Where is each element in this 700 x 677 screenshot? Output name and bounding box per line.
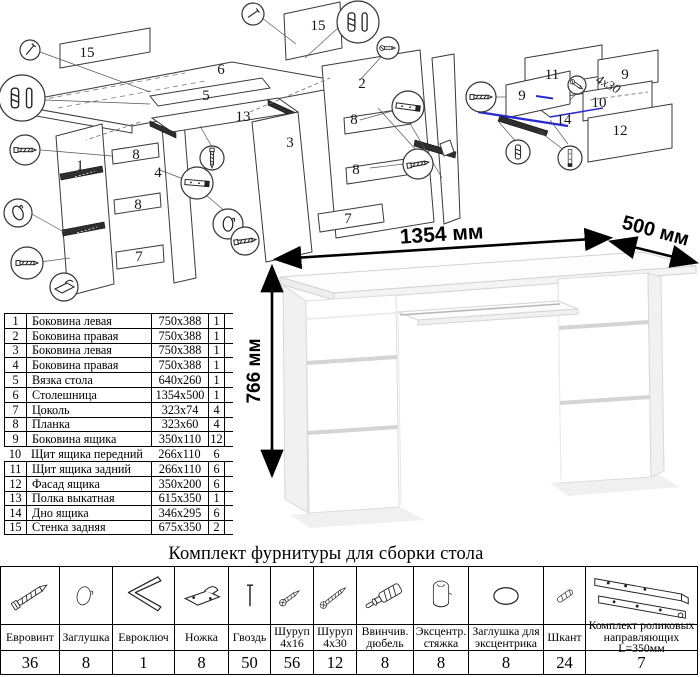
hardware-item-name: Комплект роликовых направляющих L=350мм (586, 625, 697, 651)
dimension-depth-label: 500 мм (620, 212, 692, 251)
part-name: Боковина левая (26, 344, 151, 358)
part-number-label: 8 (352, 162, 360, 178)
callout-confirmat-icon (11, 247, 43, 279)
dimension-height-label: 766 мм (244, 338, 265, 403)
part-number-label: 1 (76, 158, 84, 174)
parts-list-table: 1 Боковина левая 750x388 1 2 Боковина пр… (4, 313, 233, 535)
part-name: Боковина правая (26, 358, 151, 372)
hardware-item-cap: Заглушка8 (59, 567, 112, 674)
part-size: 750x388 (151, 314, 208, 328)
callout-dowel-pair-icon (337, 1, 379, 43)
hardware-item-qty: 12 (314, 651, 356, 674)
parts-table-row: 7 Цоколь 323x74 4 (4, 402, 233, 417)
screw-4x30-icon (314, 567, 356, 625)
part-name: Боковина правая (26, 329, 151, 343)
part-qty: 1 (208, 314, 225, 328)
hardware-item-cam-lock: Эксцентр. стяжка8 (413, 567, 468, 674)
part-number-label: 6 (217, 62, 225, 78)
part-size: 750x388 (151, 344, 208, 358)
part-number: 5 (4, 373, 26, 387)
hardware-item-name: Заглушка для эксцентрика (469, 625, 543, 651)
part-size: 350x200 (151, 477, 208, 491)
part-number-label: 13 (236, 109, 251, 125)
hardware-item-name: Шуруп 4x16 (271, 625, 313, 651)
callout-confirmat-icon (10, 135, 40, 165)
part-number-label: 14 (557, 112, 573, 128)
part-qty: 4 (208, 403, 225, 417)
part-number: 15 (4, 521, 26, 534)
hardware-item-foot: Ножка8 (174, 567, 228, 674)
parts-table-row: 5 Вязка стола 640x260 1 (4, 372, 233, 387)
part-qty: 4 (208, 418, 225, 432)
hardware-kit-title: Комплект фурнитуры для сборки стола (0, 544, 652, 565)
part-qty: 1 (208, 492, 225, 506)
hardware-kit-table: Евровинт36Заглушка8Евроключ1Ножка8Гвоздь… (0, 566, 698, 675)
part-size: 323x74 (151, 403, 208, 417)
part-name: Планка (26, 418, 151, 432)
part-qty: 6 (208, 506, 225, 520)
part-number-label: 11 (545, 67, 559, 83)
cap-icon (60, 567, 112, 625)
nail-icon (229, 567, 270, 625)
parts-table-row: 9 Боковина ящика 350x110 12 (4, 431, 233, 446)
part-number: 13 (4, 492, 26, 506)
hardware-item-name: Евроключ (113, 625, 174, 651)
part-qty: 1 (208, 358, 225, 372)
hardware-item-qty: 36 (1, 651, 59, 674)
part-name: Щит ящика задний (26, 462, 151, 476)
part-size: 266x110 (151, 447, 208, 461)
foot-icon (175, 567, 228, 625)
part-number-label: 10 (592, 95, 607, 111)
hardware-item-screw-in-dowel: Ввинчив. дюбель8 (356, 567, 413, 674)
part-number: 12 (4, 477, 26, 491)
hardware-item-name: Ввинчив. дюбель (357, 625, 413, 651)
desk-illustration: 1354 мм 500 мм 766 мм (250, 215, 700, 555)
part-number: 6 (4, 388, 26, 402)
part-name: Боковина ящика (26, 432, 151, 446)
callout-confirmat-icon (377, 37, 399, 59)
part-size: 640x260 (151, 373, 208, 387)
parts-table-row: 6 Столешница 1354x500 1 (4, 387, 233, 402)
hardware-item-qty: 8 (60, 651, 112, 674)
hardware-item-qty: 56 (271, 651, 313, 674)
callout-confirmat-icon (200, 146, 224, 170)
part-size: 750x388 (151, 329, 208, 343)
part-name: Дно ящика (26, 506, 151, 520)
part-size: 323x60 (151, 418, 208, 432)
part-name: Столешница (26, 388, 151, 402)
parts-table-row: 4 Боковина правая 750x388 1 (4, 357, 233, 372)
parts-table-row: 3 Боковина левая 750x388 1 (4, 343, 233, 358)
part-number: 7 (4, 403, 26, 417)
parts-table-row: 11 Щит ящика задний 266x110 6 (4, 461, 233, 476)
hardware-item-hex-key: Евроключ1 (112, 567, 174, 674)
part-number-label: 9 (518, 88, 526, 104)
part-qty: 1 (208, 329, 225, 343)
callout-screw-icon (568, 76, 586, 94)
part-size: 750x388 (151, 358, 208, 372)
callout-nail-icon (242, 3, 264, 25)
part-number-label: 2 (358, 76, 366, 92)
hex-key-icon (113, 567, 174, 625)
hardware-item-qty: 8 (414, 651, 468, 674)
part-size: 1354x500 (151, 388, 208, 402)
hardware-item-name: Гвоздь (229, 625, 270, 651)
part-number-label: 3 (286, 135, 294, 151)
part-number-label: 12 (613, 123, 628, 139)
part-size: 266x110 (151, 462, 208, 476)
screw-in-dowel-icon (357, 567, 413, 625)
hardware-item-name: Эксцентр. стяжка (414, 625, 468, 651)
hardware-item-roller-slides: Комплект роликовых направляющих L=350мм7 (585, 567, 697, 674)
hardware-item-name: Евровинт (1, 625, 59, 651)
part-qty: 2 (208, 521, 225, 534)
hardware-item-cam-cap: Заглушка для эксцентрика8 (468, 567, 543, 674)
part-qty: 1 (208, 388, 225, 402)
hardware-item-qty: 7 (586, 651, 697, 674)
roller-slides-icon (586, 567, 697, 625)
part-size: 346x295 (151, 506, 208, 520)
drawer-assembly-diagram: 4x30 1199101214 (440, 40, 700, 220)
parts-table-row: 13 Полка выкатная 615x350 1 (4, 491, 233, 506)
hardware-item-qty: 8 (357, 651, 413, 674)
hardware-item-nail: Гвоздь50 (228, 567, 270, 674)
part-qty: 12 (208, 432, 225, 446)
callout-dowel-icon (506, 140, 530, 164)
part-qty: 6 (208, 477, 225, 491)
part-number-label: 15 (80, 45, 95, 61)
part-name: Фасад ящика (26, 477, 151, 491)
cam-lock-icon (414, 567, 468, 625)
part-number-label: 4 (154, 165, 162, 181)
part-size: 615x350 (151, 492, 208, 506)
part-number: 10 (4, 447, 26, 461)
part-number: 9 (4, 432, 26, 446)
callout-nail-icon (20, 40, 40, 60)
part-number-label: 9 (621, 67, 629, 83)
parts-table-row: 14 Дно ящика 346x295 6 (4, 505, 233, 520)
part-name: Щит ящика передний (26, 447, 151, 461)
hardware-item-qty: 8 (469, 651, 543, 674)
part-number: 1 (4, 314, 26, 328)
callout-dowel-pair-icon (0, 75, 45, 121)
parts-table-row: 8 Планка 323x60 4 (4, 417, 233, 432)
parts-table-row: 2 Боковина правая 750x388 1 (4, 328, 233, 343)
hardware-item-screw-4x16: Шуруп 4x1656 (270, 567, 313, 674)
hardware-item-qty: 50 (229, 651, 270, 674)
hardware-item-qty: 24 (544, 651, 585, 674)
callout-confirmat-icon (403, 149, 433, 179)
part-number: 4 (4, 358, 26, 372)
part-number: 2 (4, 329, 26, 343)
dimension-width-label: 1354 мм (399, 220, 484, 248)
part-number-label: 8 (132, 147, 140, 163)
part-number: 14 (4, 506, 26, 520)
wood-dowel-icon (544, 567, 585, 625)
hardware-item-confirmat-screw: Евровинт36 (1, 567, 59, 674)
parts-table-row: 10 Щит ящика передний 266x110 6 (4, 446, 233, 461)
assembly-instruction-sheet: 156152513388718487 (0, 0, 700, 677)
part-number-label: 15 (311, 18, 326, 34)
part-name: Полка выкатная (26, 492, 151, 506)
callout-rail-end-icon (558, 146, 582, 170)
part-name: Цоколь (26, 403, 151, 417)
hardware-item-qty: 8 (175, 651, 228, 674)
part-number-label: 8 (350, 112, 358, 128)
parts-table-row: 12 Фасад ящика 350x200 6 (4, 476, 233, 491)
part-number: 3 (4, 344, 26, 358)
screw-4x16-icon (271, 567, 313, 625)
cam-cap-icon (469, 567, 543, 625)
part-name: Стенка задняя (26, 521, 151, 534)
part-number-label: 5 (202, 88, 210, 104)
hardware-item-wood-dowel: Шкант24 (543, 567, 585, 674)
part-number: 8 (4, 418, 26, 432)
hardware-item-qty: 1 (113, 651, 174, 674)
callout-rail-icon (181, 167, 213, 199)
callout-foot-icon (50, 273, 78, 301)
part-name: Боковина левая (26, 314, 151, 328)
part-number-label: 7 (135, 249, 143, 265)
part-qty: 6 (208, 447, 225, 461)
part-size: 350x110 (151, 432, 208, 446)
confirmat-screw-icon (1, 567, 59, 625)
hardware-item-screw-4x30: Шуруп 4x3012 (313, 567, 356, 674)
part-qty: 1 (208, 373, 225, 387)
parts-table-row: 15 Стенка задняя 675x350 2 (4, 520, 233, 535)
part-number-label: 8 (134, 197, 142, 213)
hardware-item-name: Ножка (175, 625, 228, 651)
part-number: 11 (4, 462, 26, 476)
part-name: Вязка стола (26, 373, 151, 387)
hardware-item-name: Шкант (544, 625, 585, 651)
part-qty: 1 (208, 344, 225, 358)
callout-rail-icon (392, 91, 424, 123)
hardware-item-name: Заглушка (60, 625, 112, 651)
callout-cap-icon (4, 199, 32, 227)
hardware-item-name: Шуруп 4x30 (314, 625, 356, 651)
callout-confirmat-icon (466, 82, 496, 112)
part-size: 675x350 (151, 521, 208, 534)
part-qty: 6 (208, 462, 225, 476)
parts-table-row: 1 Боковина левая 750x388 1 (4, 313, 233, 328)
